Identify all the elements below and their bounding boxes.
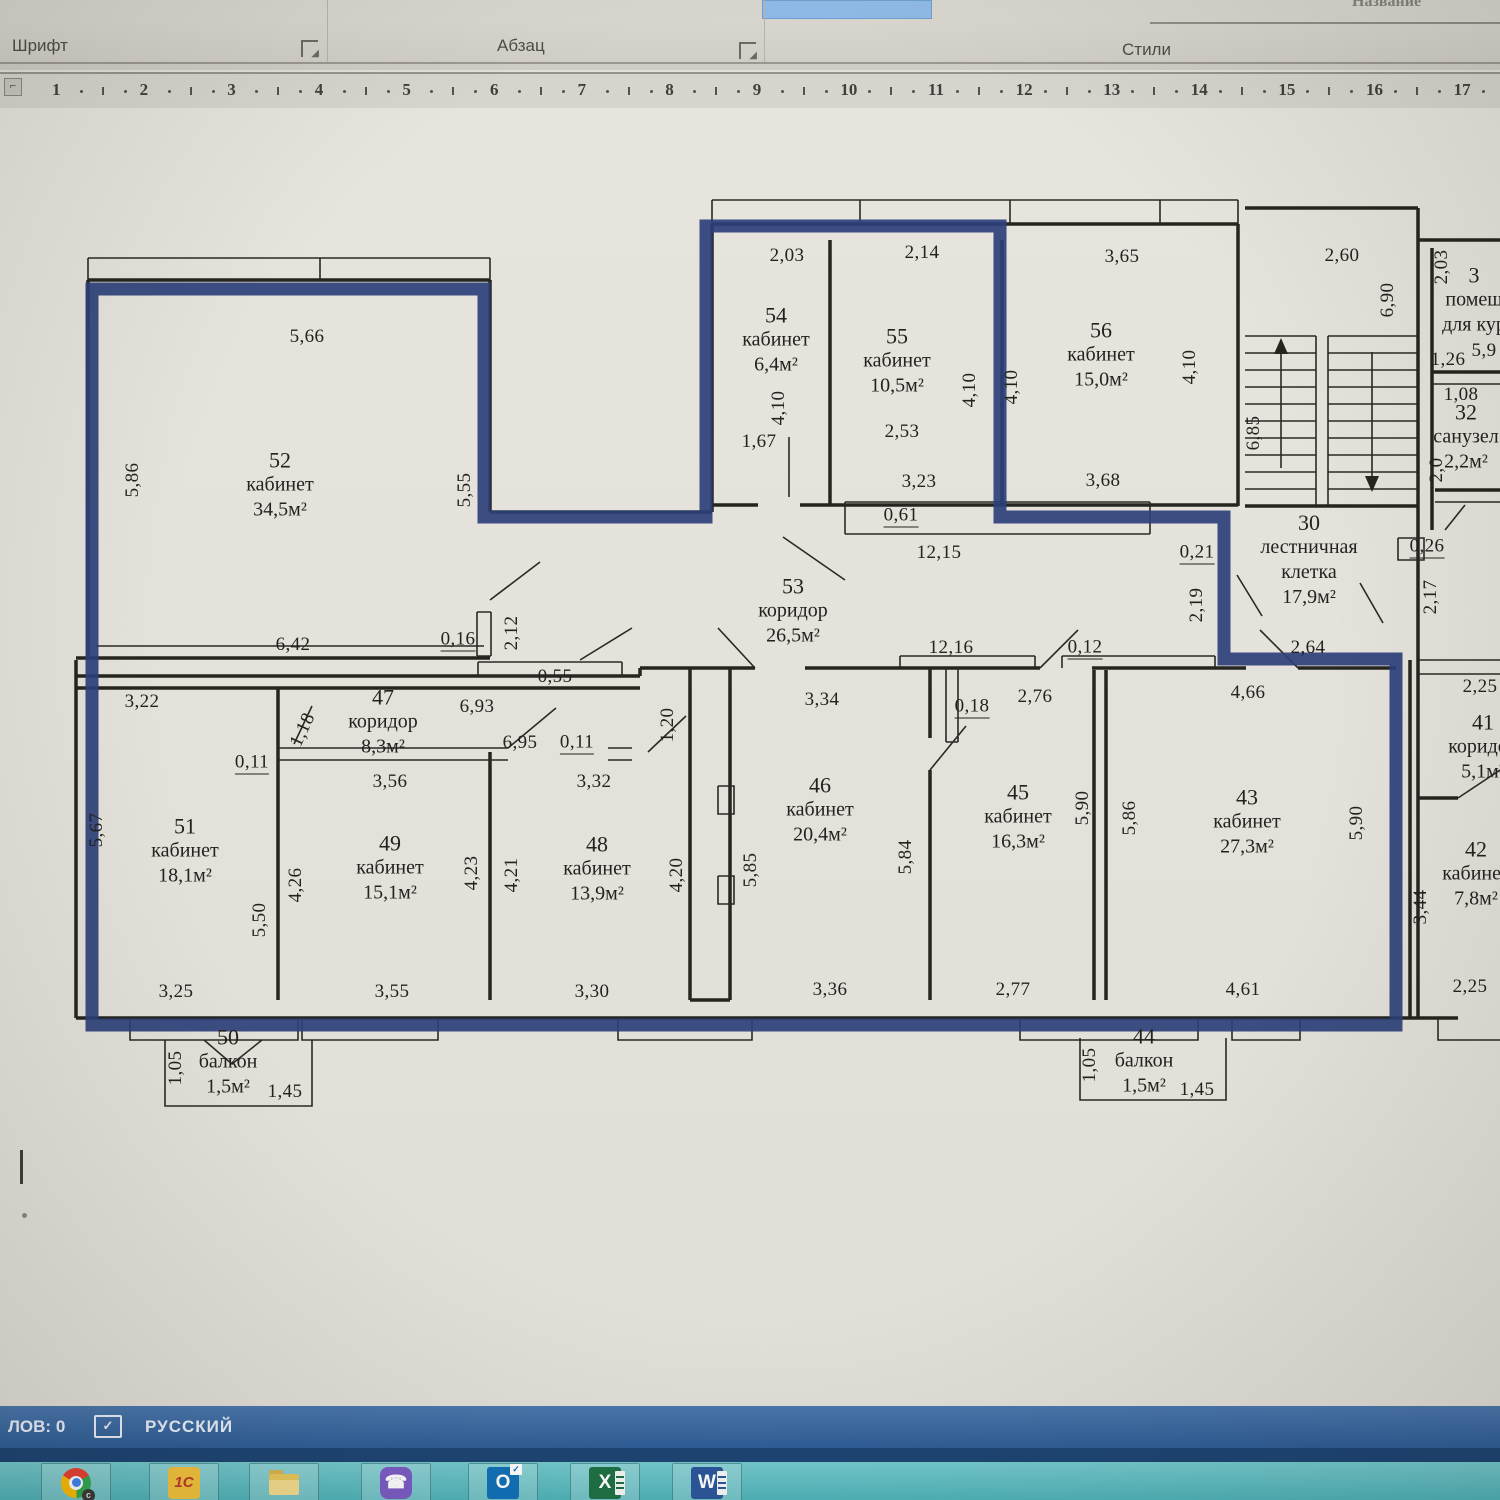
dim-label: 3,65 — [1105, 246, 1140, 268]
chrome-icon-center — [72, 1478, 81, 1487]
dim-label: 2,25 — [1463, 676, 1498, 698]
room-label-46: 46 кабинет 20,4м² — [786, 773, 854, 848]
paragraph-mark — [22, 1213, 27, 1218]
room-number: 42 — [1442, 837, 1500, 862]
room-label-56: 56 кабинет 15,0м² — [1067, 318, 1135, 393]
dim-label: 1,67 — [742, 431, 777, 453]
dim-label: 1,45 — [268, 1081, 303, 1103]
dim-label: 5,9 — [1472, 340, 1497, 362]
room-label-30: 30 лестничная клетка 17,9м² — [1234, 510, 1384, 610]
text-cursor — [20, 1150, 23, 1184]
word-icon-letter: W — [698, 1472, 716, 1494]
room-number: 50 — [199, 1025, 258, 1050]
dim-label: 4,21 — [501, 858, 523, 893]
dim-label: 1,05 — [165, 1051, 187, 1086]
room-area: для кур — [1442, 313, 1500, 338]
room-type: кабинет — [984, 805, 1052, 830]
dim-label: 2,53 — [885, 421, 920, 443]
taskbar-top-strip — [0, 1448, 1500, 1462]
room-number: 47 — [348, 685, 418, 710]
dim-label: 1,05 — [1079, 1048, 1101, 1083]
room-label-51: 51 кабинет 18,1м² — [151, 814, 219, 889]
dim-label: 4,10 — [1001, 370, 1023, 405]
dim-label: 5,90 — [1072, 791, 1094, 826]
dim-label: 5,55 — [454, 473, 476, 508]
dim-label: 6,95 — [503, 732, 538, 754]
dim-label: 3,34 — [805, 689, 840, 711]
room-label-52: 52 кабинет 34,5м² — [246, 448, 314, 523]
excel-icon: X — [589, 1467, 621, 1499]
room-label-42: 42 кабинет 7,8м² — [1442, 837, 1500, 912]
room-number: 49 — [356, 831, 424, 856]
outlook-icon: O ✓ — [487, 1467, 519, 1499]
room-area: 6,4м² — [742, 353, 810, 378]
dim-label: 3,68 — [1086, 470, 1121, 492]
room-area: 8,3м² — [348, 735, 418, 760]
outlook-taskbar-button[interactable]: O ✓ — [468, 1463, 538, 1500]
room-type: кабинет — [246, 473, 314, 498]
room-number: 41 — [1448, 710, 1500, 735]
room-number: 45 — [984, 780, 1052, 805]
dim-label: 4,10 — [1179, 350, 1201, 385]
room-number: 30 — [1234, 510, 1384, 535]
viber-icon: ☎ — [380, 1467, 412, 1499]
word-taskbar-button[interactable]: W — [672, 1463, 742, 1500]
room-type: кабинет — [151, 839, 219, 864]
dim-label: 0,26 — [1410, 536, 1445, 559]
room-type: кабинет — [1067, 343, 1135, 368]
dim-label: 6,93 — [460, 696, 495, 718]
dim-label: 2,60 — [1325, 245, 1360, 267]
outlook-envelope-badge: ✓ — [510, 1464, 522, 1475]
dim-label: 3,36 — [813, 979, 848, 1001]
dim-label: 0,11 — [235, 752, 269, 775]
room-number: 55 — [863, 324, 931, 349]
dim-label: 5,66 — [290, 326, 325, 348]
room-area: 34,5м² — [246, 498, 314, 523]
dim-label: 5,84 — [895, 840, 917, 875]
dim-label: 6,85 — [1243, 416, 1265, 451]
room-area: 15,1м² — [356, 881, 424, 906]
word-icon-page — [717, 1471, 727, 1495]
dim-label: 0,16 — [441, 629, 476, 652]
dim-label: 1,20 — [657, 708, 679, 743]
language-indicator[interactable]: РУССКИЙ — [145, 1417, 233, 1437]
dim-label: 5,86 — [1119, 801, 1141, 836]
dim-label: 0,21 — [1180, 542, 1215, 565]
room-label-47: 47 коридор 8,3м² — [348, 685, 418, 760]
dim-label: 6,42 — [276, 634, 311, 656]
room-type: балкон — [1115, 1049, 1174, 1074]
dim-label: 0,12 — [1068, 637, 1103, 660]
folder-icon — [268, 1467, 300, 1499]
dim-label: 3,44 — [1410, 890, 1432, 925]
room-type: балкон — [199, 1050, 258, 1075]
room-area: 15,0м² — [1067, 368, 1135, 393]
proofing-icon[interactable]: ✓ — [94, 1415, 122, 1438]
dim-label: 4,61 — [1226, 979, 1261, 1001]
room-label-43: 43 кабинет 27,3м² — [1213, 785, 1281, 860]
dim-label: 12,15 — [917, 542, 962, 564]
room-type: кабинет — [742, 328, 810, 353]
dim-label: 2,76 — [1018, 686, 1053, 708]
1c-taskbar-button[interactable]: 1С — [149, 1463, 219, 1500]
dim-label: 3,25 — [159, 981, 194, 1003]
room-label-44-balcony: 44 балкон 1,5м² — [1115, 1024, 1174, 1099]
dim-label: 4,66 — [1231, 682, 1266, 704]
room-area: 17,9м² — [1234, 585, 1384, 610]
dim-label: 2,17 — [1420, 580, 1442, 615]
chrome-profile-badge: c — [82, 1489, 95, 1500]
room-number: 56 — [1067, 318, 1135, 343]
dim-label: 0,61 — [884, 505, 919, 528]
dim-label: 1,45 — [1180, 1079, 1215, 1101]
room-area: 10,5м² — [863, 374, 931, 399]
room-type: помещ — [1442, 288, 1500, 313]
room-type: кабинет — [563, 857, 631, 882]
photographed-word-window: Шрифт Абзац Стили ◢ ◢ Название 123456789… — [0, 0, 1500, 1500]
dim-label: 3,22 — [125, 691, 160, 713]
dim-label: 0,18 — [955, 696, 990, 719]
dim-label: 2,64 — [1291, 637, 1326, 659]
room-area: 26,5м² — [758, 624, 828, 649]
room-number: 53 — [758, 574, 828, 599]
room-type: кабинет — [786, 798, 854, 823]
room-area: 27,3м² — [1213, 835, 1281, 860]
dim-label: 3,23 — [902, 471, 937, 493]
room-area: 13,9м² — [563, 882, 631, 907]
dim-label: 2,19 — [1186, 588, 1208, 623]
folder-taskbar-button[interactable] — [249, 1463, 319, 1500]
room-area: 20,4м² — [786, 823, 854, 848]
room-label-49: 49 кабинет 15,1м² — [356, 831, 424, 906]
1c-icon: 1С — [168, 1467, 200, 1499]
room-type: кабинет — [1213, 810, 1281, 835]
excel-icon-letter: X — [599, 1472, 612, 1494]
room-area: 16,3м² — [984, 830, 1052, 855]
dim-label: 4,26 — [285, 868, 307, 903]
room-number: 48 — [563, 832, 631, 857]
room-label-45: 45 кабинет 16,3м² — [984, 780, 1052, 855]
room-number: 51 — [151, 814, 219, 839]
excel-icon-page — [615, 1471, 625, 1495]
dim-label: 2,77 — [996, 979, 1031, 1001]
dim-label: 6,90 — [1377, 283, 1399, 318]
dim-label: 4,10 — [959, 373, 981, 408]
room-number: 54 — [742, 303, 810, 328]
dim-label: 5,90 — [1346, 806, 1368, 841]
room-label-55: 55 кабинет 10,5м² — [863, 324, 931, 399]
dim-label: 5,86 — [122, 463, 144, 498]
dim-label: 5,85 — [740, 853, 762, 888]
chrome-icon: c — [61, 1468, 91, 1498]
dim-label: 0,11 — [560, 732, 594, 755]
dim-label: 2,25 — [1453, 976, 1488, 998]
stairs-up-arrow — [1274, 338, 1288, 354]
chrome-taskbar-button[interactable]: c — [41, 1463, 111, 1500]
room-type: санузел — [1433, 425, 1498, 450]
dim-label: 3,56 — [373, 771, 408, 793]
room-area: 7,8м² — [1442, 887, 1500, 912]
room-type: коридор — [1448, 735, 1500, 760]
dim-label: 2,0 — [1426, 458, 1448, 483]
dim-label: 12,16 — [929, 637, 974, 659]
room-label-53: 53 коридор 26,5м² — [758, 574, 828, 649]
room-type: коридор — [758, 599, 828, 624]
taskbar: c 1С ☎ O ✓ X — [0, 1462, 1500, 1500]
room-type: коридор — [348, 710, 418, 735]
status-bar: ЛОВ: 0 ✓ РУССКИЙ — [0, 1406, 1500, 1448]
dim-label: 2,03 — [770, 245, 805, 267]
dim-label: 4,10 — [768, 391, 790, 426]
room-type: кабинет — [863, 349, 931, 374]
room-type: лестничная клетка — [1234, 535, 1384, 585]
floor-plan-drawing — [0, 0, 1500, 1500]
dim-label: 4,20 — [666, 858, 688, 893]
room-number: 46 — [786, 773, 854, 798]
room-type: кабинет — [1442, 862, 1500, 887]
dim-label: 5,67 — [86, 813, 108, 848]
room-area: 1,5м² — [199, 1075, 258, 1100]
room-label-50-balcony: 50 балкон 1,5м² — [199, 1025, 258, 1100]
dim-label: 1,26 — [1431, 349, 1466, 371]
folder-icon-front — [269, 1480, 299, 1495]
dim-label: 4,23 — [461, 856, 483, 891]
excel-taskbar-button[interactable]: X — [570, 1463, 640, 1500]
dim-label: 1,08 — [1444, 384, 1479, 406]
word-count[interactable]: ЛОВ: 0 — [8, 1417, 65, 1437]
room-area: 18,1м² — [151, 864, 219, 889]
room-label-41: 41 коридор 5,1м² — [1448, 710, 1500, 785]
dim-label: 3,32 — [577, 771, 612, 793]
room-area: 5,1м² — [1448, 760, 1500, 785]
room-number: 52 — [246, 448, 314, 473]
dim-label: 2,14 — [905, 242, 940, 264]
viber-taskbar-button[interactable]: ☎ — [361, 1463, 431, 1500]
outlook-icon-letter: O — [496, 1472, 511, 1494]
room-type: кабинет — [356, 856, 424, 881]
dim-label: 0,55 — [538, 666, 573, 688]
room-number: 44 — [1115, 1024, 1174, 1049]
room-number: 43 — [1213, 785, 1281, 810]
word-icon: W — [691, 1467, 723, 1499]
dim-label: 3,55 — [375, 981, 410, 1003]
dim-label: 2,03 — [1431, 250, 1453, 285]
room-label-48: 48 кабинет 13,9м² — [563, 832, 631, 907]
room-label-54: 54 кабинет 6,4м² — [742, 303, 810, 378]
dim-label: 5,50 — [249, 903, 271, 938]
dim-label: 2,12 — [501, 616, 523, 651]
dim-label: 3,30 — [575, 981, 610, 1003]
room-area: 1,5м² — [1115, 1074, 1174, 1099]
